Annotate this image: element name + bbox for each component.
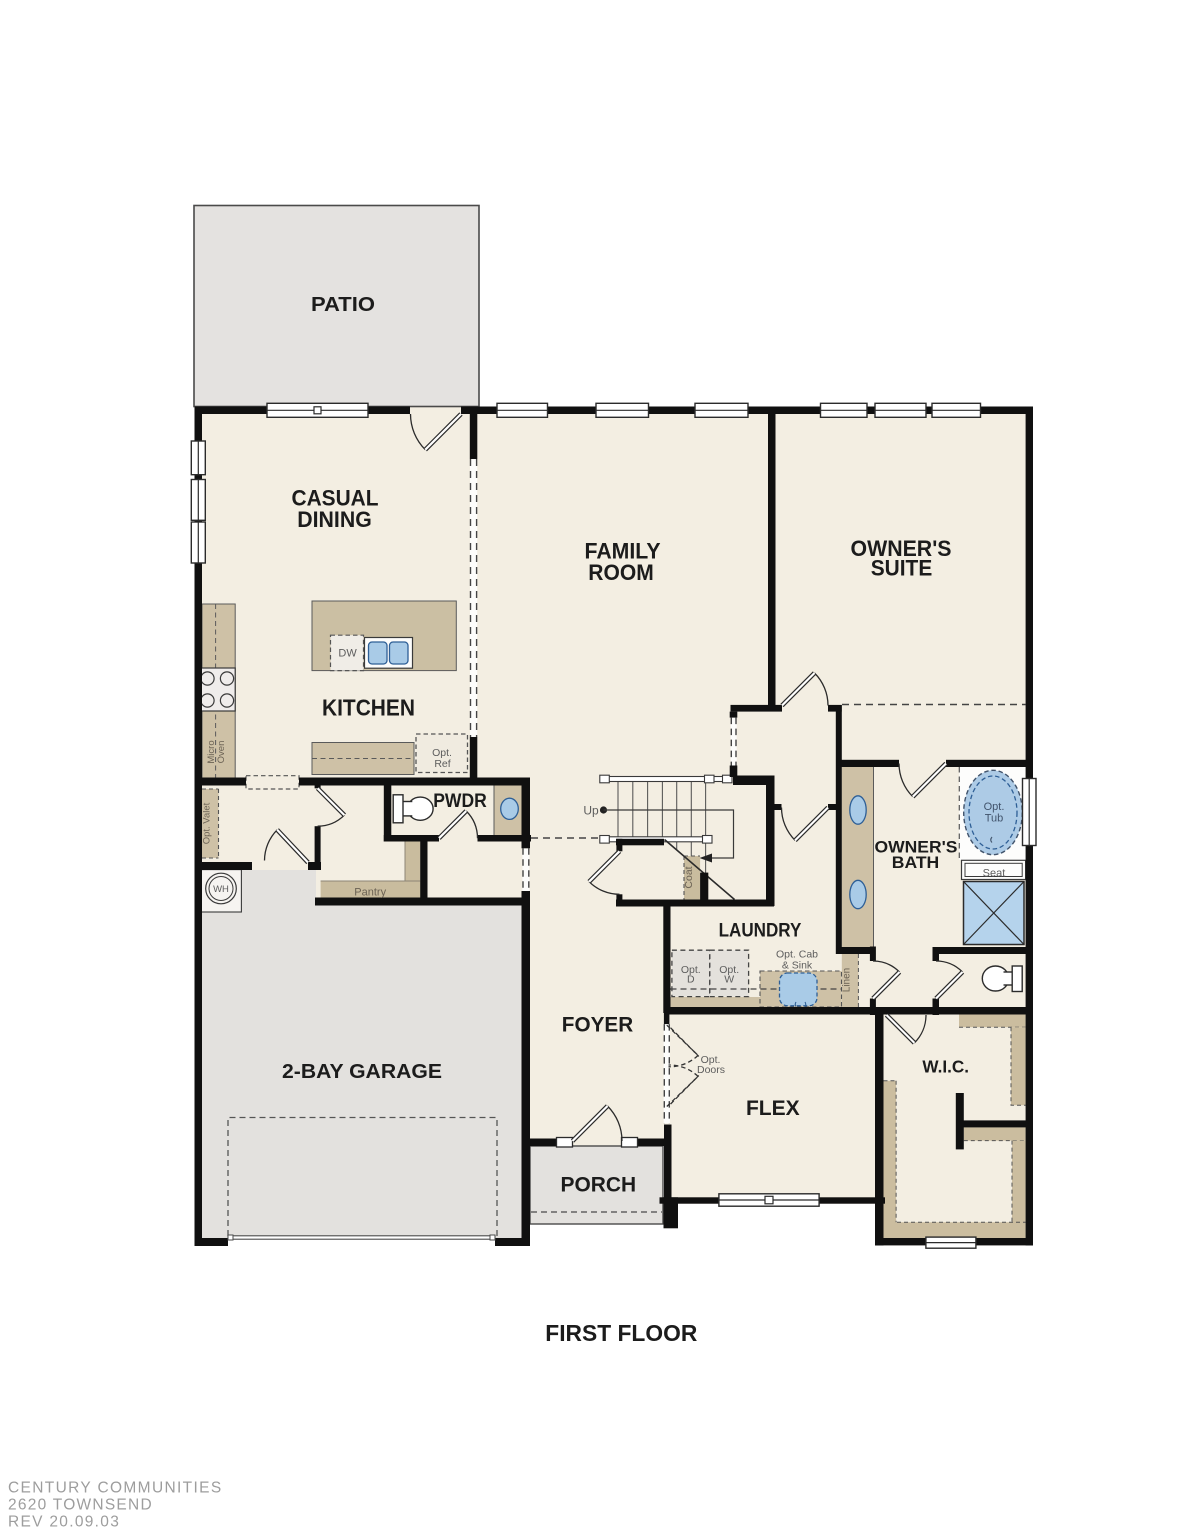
svg-text:& Sink: & Sink	[782, 960, 813, 972]
svg-text:PATIO: PATIO	[311, 293, 375, 316]
svg-text:FOYER: FOYER	[562, 1012, 634, 1036]
svg-text:Linen: Linen	[842, 968, 853, 992]
svg-text:WH: WH	[213, 884, 229, 895]
svg-text:DINING: DINING	[297, 507, 372, 532]
svg-text:ROOM: ROOM	[588, 560, 654, 585]
svg-text:PORCH: PORCH	[561, 1172, 637, 1196]
svg-text:Seat: Seat	[983, 868, 1006, 880]
svg-text:FLEX: FLEX	[746, 1096, 800, 1120]
svg-text:Up: Up	[583, 804, 599, 818]
svg-text:Ref: Ref	[434, 758, 450, 770]
svg-text:2620 TOWNSEND: 2620 TOWNSEND	[8, 1497, 153, 1514]
svg-text:Doors: Doors	[697, 1064, 725, 1076]
svg-text:Coat: Coat	[683, 866, 695, 888]
svg-text:Opt.: Opt.	[984, 801, 1005, 813]
svg-text:DW: DW	[338, 648, 357, 660]
svg-text:CENTURY COMMUNITIES: CENTURY COMMUNITIES	[8, 1480, 223, 1497]
svg-text:SUITE: SUITE	[871, 556, 933, 581]
svg-text:REV 20.09.03: REV 20.09.03	[8, 1514, 120, 1531]
svg-text:FIRST FLOOR: FIRST FLOOR	[545, 1320, 697, 1346]
svg-text:2-BAY GARAGE: 2-BAY GARAGE	[282, 1061, 442, 1083]
svg-text:LAUNDRY: LAUNDRY	[719, 920, 802, 942]
svg-text:D: D	[687, 974, 695, 986]
svg-text:W.I.C.: W.I.C.	[922, 1057, 969, 1077]
svg-text:PWDR: PWDR	[433, 790, 487, 812]
svg-text:Pantry: Pantry	[354, 887, 386, 899]
svg-text:KITCHEN: KITCHEN	[322, 695, 415, 721]
svg-text:W: W	[724, 974, 734, 986]
svg-text:Oven: Oven	[216, 741, 227, 764]
svg-text:Tub: Tub	[985, 813, 1004, 825]
svg-text:BATH: BATH	[892, 853, 940, 872]
svg-text:Opt. Valet: Opt. Valet	[202, 802, 213, 844]
